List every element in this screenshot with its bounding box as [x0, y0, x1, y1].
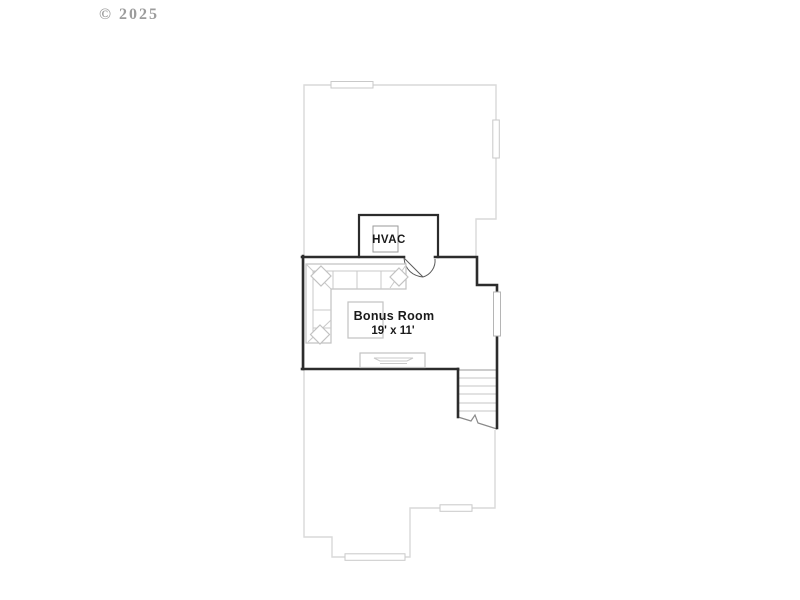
- door-swing-arc: [423, 259, 435, 277]
- copyright-watermark: © 2025: [99, 6, 159, 23]
- floor-plan-page: HVAC Bonus Room 19' x 11' © 2025: [0, 0, 800, 600]
- staircase: [458, 370, 497, 429]
- floor-plan-canvas: HVAC Bonus Room 19' x 11' © 2025: [0, 0, 800, 600]
- hvac-label: HVAC: [372, 234, 406, 246]
- wall: [435, 257, 497, 292]
- window: [494, 292, 501, 336]
- media-console: [360, 353, 425, 368]
- window: [440, 505, 472, 512]
- double-door: [404, 258, 435, 277]
- stair-break-line: [458, 415, 497, 429]
- window: [331, 82, 373, 89]
- room-dimensions-label: 19' x 11': [371, 325, 414, 337]
- window: [493, 120, 500, 158]
- window: [345, 554, 405, 561]
- media-console-outline: [360, 353, 425, 368]
- bonus-room-label: Bonus Room: [354, 309, 435, 323]
